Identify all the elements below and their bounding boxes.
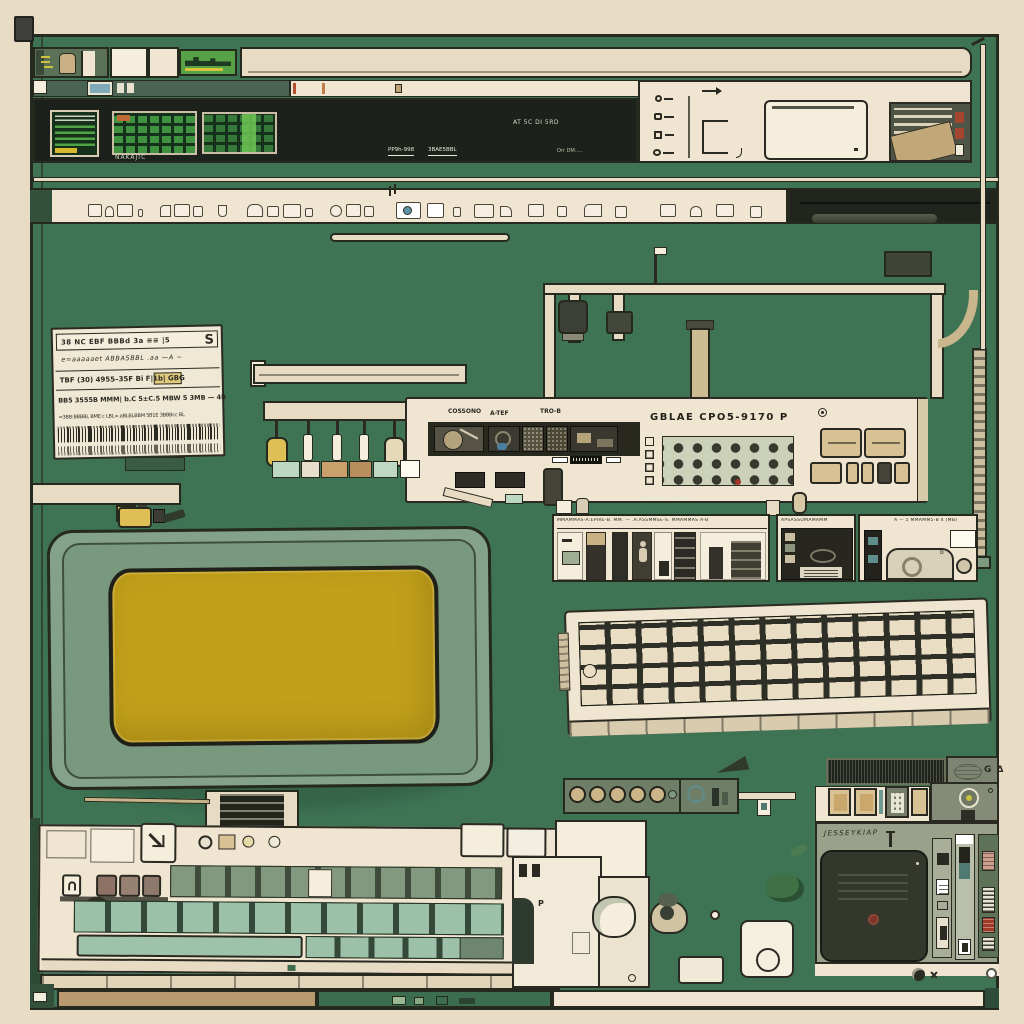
device-doodle [305,208,313,217]
terrarium-device [33,47,109,78]
radio-bottom-strip [815,962,999,976]
module-a-left-wall [557,532,583,580]
appliance-door-ring [902,557,922,577]
crt-strip-caption: NAKAJIC [115,155,146,161]
console-arch [512,898,534,964]
hanger-stem [275,420,278,438]
rack-label-1: COSSONO [448,409,481,415]
rack-attach-box [400,460,420,478]
console-square-outline [572,932,590,954]
big-key-line [872,442,900,444]
kbd-arrow-key [140,823,176,863]
rack-mint-box [505,494,523,504]
device-doodle [174,204,190,217]
pipe-left-vertical [543,293,556,399]
plant-blob [766,874,804,902]
module-b-platter [810,549,836,563]
disk-platter [443,430,463,450]
hanger-pin [332,434,342,461]
divider-line [688,96,690,158]
spec-card: 38 NC EBF BBBd 3a ≡≡ |5 S e=aaaaaet ABBA… [51,324,226,460]
crt-screen-3 [202,112,277,154]
device-doodle [117,204,133,217]
camera-pod [558,300,588,334]
keypad-grid [891,793,904,813]
crt-monitor-shell [47,526,494,791]
rack-label-3: TRO-B [540,409,561,415]
device-doodle [330,205,342,217]
wall-mark [562,539,572,542]
console-p-mark: P [538,900,544,908]
monitor-top-knob [118,507,152,528]
console-dot [628,974,636,982]
chip-strip [33,80,290,97]
radio-col-2 [955,834,975,960]
pipe-b-pod [606,311,633,334]
camera-pod-base [562,333,584,341]
module-b: APSASSOMAMAMM [776,514,856,582]
col1-dark-square [937,853,949,865]
radio-white-ring [986,968,997,979]
kbd-olive-keyrow [170,865,502,899]
device-doodle [528,204,544,217]
mid-keyboard [564,597,996,750]
radio-bottom-knob [912,968,925,981]
key-icon-2 [654,113,662,120]
kbd-bottom-bezel [42,958,554,974]
bottom-strip-dark-block [985,988,999,1008]
big-pipe [690,328,710,399]
big-key-2 [864,428,906,458]
tray-rod [812,214,937,223]
module-a-door-1 [586,532,606,580]
device-doodle [474,204,494,218]
dial-tiny-circle [988,788,993,793]
indicator-column [645,437,654,446]
terrarium-dark-block [36,50,44,75]
reel-window [488,426,520,452]
kbd-knob-ball-yellow [242,836,254,848]
illustration-canvas: NAKAJIC PP9h-998 3BAE5BBL AT 5C DI 5RD O… [0,0,1024,1024]
module-a-room-right [700,532,766,580]
radio-teal-sliver [879,790,883,814]
kbd-space-bar [77,934,303,958]
kbd-cream-key-arch [62,874,81,896]
kbd-knob-cube [218,834,235,849]
card-corner-mark: S [204,333,214,346]
terrarium-door [81,51,95,76]
module-c-mark: b [940,550,944,556]
slider-key [846,462,859,484]
corner-knob [14,16,34,42]
cassette-red-label [955,112,964,123]
card-barcode-1 [58,423,220,442]
radio-dial [959,788,979,808]
col1-book-icon [936,879,949,895]
tile-mint-1 [272,461,300,478]
device-doodle [557,206,567,217]
radio-col-1 [932,838,952,958]
speaker-white-dot [916,862,919,865]
kbd-brown-key [142,875,161,897]
whiteboard [764,100,868,160]
device-doodle [88,204,102,217]
top-long-bar-line [248,71,962,73]
tiny-figure-body [639,548,647,562]
slider-key [861,462,874,484]
hanger-bar-bottom [263,401,417,421]
cityscape-screen [179,49,237,76]
radio-t-mark [889,831,892,847]
crt1-caption-rows [55,115,95,121]
bottom-left-dark-square [30,984,54,1008]
dark-transformer-box [884,251,932,277]
big-key-line [828,442,856,444]
device-doodle [218,205,227,217]
module-c-header: A — 5 MMAMM5-B 4 (MB) [894,518,976,526]
shelf-knob [649,786,666,803]
dial-dark-square [961,810,975,820]
col3-barcode-chip-2 [982,937,995,951]
tray-shadow-line [800,202,990,204]
radio-stamp [954,764,982,780]
shelf-knob [569,786,586,803]
strip-glyph-2 [414,997,424,1005]
arch-glyph [68,881,76,890]
module-top-cylinder [576,498,589,514]
kbd-left-panel-1 [46,830,86,858]
head-block-2 [597,439,613,447]
device-doodle [193,206,203,217]
key-icon-1-tail [664,98,673,100]
rack-tape-label [570,456,602,464]
dial-center-dot [966,795,972,801]
crt-strip-tag-1: PP9h-998 [388,148,414,156]
mug [740,920,794,978]
kbd-brown-key [119,875,140,897]
key-icon-3 [654,131,662,139]
module-a-header: MMAMMAS-A:EPIRE-B. MM. — .A:ASSMMSE-S. M… [557,518,767,529]
terrarium-bottle [59,53,76,74]
left-connector-bar [31,483,181,505]
crt1-yellow-bar [55,148,77,153]
card-barcode-2 [58,443,220,455]
disk-window [434,426,484,452]
teal-ring-icon [687,785,705,803]
device-doodle [346,204,361,217]
card-row-text: 38 NC EBF BBBd 3a ≡≡ |5 [61,337,170,346]
kbd-white-box-2 [506,827,546,857]
head-window [570,426,618,452]
blank-panel-b [148,47,179,78]
radio-dial-panel [930,782,999,822]
kbd-left-panel-2 [90,829,134,863]
radio-scribble: JESSEYKIAP [824,830,879,838]
radio-button-2 [854,788,877,816]
thin-rod [330,233,510,242]
key-icon-4-tail [663,152,674,154]
crt1-text-rows [55,124,95,146]
dark-tray-panel [788,188,999,224]
at-mark-icon [818,408,827,417]
wall-sage-rect [562,551,580,565]
col2-white-top [956,835,973,844]
doodle-teal-dot [403,206,412,215]
antenna-stem [654,252,657,285]
radio-button-3 [911,788,928,816]
col2-slot-center [962,943,968,952]
teal-chip [88,82,112,95]
shelf-figure-1 [712,788,719,806]
shelf-mini-knob [668,790,677,799]
col2-bottom-slot [958,939,971,955]
shelf-figure-3 [757,799,771,816]
mini-box [33,80,47,94]
col3-red-chip [982,917,995,933]
console-box-main: P [512,856,602,988]
mound-cap [658,893,678,907]
mini-screen-teal [868,537,878,545]
speaker-window [820,850,928,962]
mid-keyboard-keyfield [578,610,976,706]
device-doodle [615,206,627,218]
strip-glyph-3 [436,996,448,1005]
key-icon-3-tail [665,134,674,136]
card-row-3: TBF (30) 4955–35F Bi F|1b| GBG [56,367,220,390]
module-c-white-bar [950,530,976,548]
shelf-knob [609,786,626,803]
whiteboard-dot [854,148,858,151]
device-doodle [247,204,263,217]
rack-right-wall [917,399,928,501]
tan-tick [395,84,402,93]
col3-pink-chip [982,851,995,871]
device-doodle [160,205,171,217]
right-rod [980,44,986,350]
col2-teal-window [959,863,970,879]
bottom-strip-cream [552,990,985,1008]
rack-slot-1 [455,472,485,488]
small-tray [678,956,724,984]
module-c-knob [956,558,972,574]
crt-monitor-screen [108,565,440,746]
cityscape-ticker [185,68,223,71]
rack-label-2: A-TEF [490,411,509,417]
big-key-1 [820,428,862,458]
wall-window [659,561,669,576]
bezel-green-tick [288,965,296,971]
device-doodle-screen [396,202,421,219]
at-mark-dot [821,411,824,414]
col1-slot-center [940,926,947,940]
kbd-mint-keyrow [74,900,504,935]
rack-watermark: SEGRETE-ARCA [640,497,690,502]
shelf-figure-2 [722,792,728,805]
blank-panel-a [110,47,148,78]
room-dark-door [709,547,723,579]
band-divider-ticks [389,186,391,196]
glove-blob [592,896,636,938]
antenna-flag [654,247,667,255]
figure-teal-dot [761,803,767,810]
device-doodle [750,206,762,218]
hose-arc-curve [938,290,978,348]
module-b-plate [800,567,842,578]
crt2-spark [117,115,130,121]
hanger-pin [359,434,369,461]
arrow-icon [702,90,717,92]
col1-slot [936,917,949,949]
module-b-tile [785,533,795,541]
glyph-band-end-block [30,190,52,222]
key-icon-1 [655,95,662,102]
key-icon-4 [653,149,661,156]
device-doodle [716,204,734,217]
key-icon-2-tail [664,116,674,118]
t-mark-bar [886,831,895,833]
speaker-faint-rows [838,870,908,900]
rack-slot-2 [495,472,525,488]
kbd-dark-key-patch [460,937,504,959]
module-b-interior [781,528,853,580]
module-c: A — 5 MMAMM5-B 4 (MB) b [858,514,978,582]
tile-mint-2 [373,461,398,478]
device-doodle [267,206,279,217]
whiteboard-top-line [772,106,854,109]
hanger-bar-line [259,374,459,376]
dark-square-white-box [33,992,47,1002]
module-a-door-2 [612,532,628,580]
rack-label-strip-white-1 [552,457,568,463]
bottom-strip-green [317,990,552,1008]
crt-screen-2 [112,111,197,155]
hanger-pin [303,434,313,461]
cassette-device [889,102,972,162]
device-doodle [500,206,512,217]
module-c-dark-strip [864,530,882,580]
chip-label-pair [117,83,124,93]
cassette-white-label [955,144,964,156]
round-button-grid [662,436,794,486]
col3-barcode-chip [982,887,995,913]
bottom-strip-tan [57,990,317,1008]
console-slot [519,864,527,877]
rack-title: GBLAE CPO5-9170 P [650,413,789,423]
card-row-4: BB5 3555B MMM| b.C 5±C.5 MBW 5 3MB — 4B [58,394,226,404]
module-a-door-3 [632,532,652,580]
rack-label-strip-white-2 [606,457,621,463]
bottom-keyboard [37,824,558,976]
hanger-bar-top [253,364,467,384]
radio-badge: G Δ [984,766,1005,775]
device-doodle [427,203,444,218]
grid-red-dot [735,479,741,485]
crt-screen-1 [50,110,99,157]
shelf-knob [589,786,606,803]
arrow-icon-head [716,87,722,95]
radio-button-1 [828,788,851,816]
device-doodle [364,206,374,217]
device-doodle [105,206,114,217]
module-b-header: APSASSOMAMAMM [781,518,853,526]
module-a-wall-2 [654,532,672,580]
hook-mark [736,148,742,158]
radio-keypad-module [885,786,909,818]
kbd-white-box-1 [460,823,504,857]
icon-panel [638,80,972,163]
device-doodle [283,204,301,218]
crt-strip-code-1: AT 5C DI 5RD [513,120,559,126]
speaker-red-dot [868,914,879,925]
room-shelf [731,541,761,579]
crt-strip-tag-2: 3BAE5BBL [428,148,457,156]
device-doodle [453,207,461,217]
horizontal-pipe [543,283,946,295]
strip-glyph-1 [392,996,406,1005]
strip-glyph-4 [459,998,475,1004]
device-doodle [138,209,143,217]
slider-key-dark [877,462,892,484]
olive-row-white-key [308,869,332,897]
device-doodle [584,204,602,217]
top-long-bar [240,47,972,78]
crt-strip-code-2: Orr DM:.... [557,149,583,154]
tile-tan-2 [349,461,372,478]
shelf-knob [629,786,646,803]
dot-window-1 [522,426,544,452]
mid-keyboard-connector [558,633,571,691]
slider-key-big [810,462,842,484]
bracket-icon [702,120,728,154]
rack-under-capsule [792,492,807,514]
module-top-box [556,500,572,514]
shelf-divider [679,778,681,814]
hanger-stem [393,420,396,438]
head-block-1 [577,433,591,443]
card-tab [125,457,185,471]
rack-window-field [428,422,640,456]
tile-tan-1 [321,461,348,478]
button-inner [860,794,873,811]
card-row-5: =3BB:BBBBL BME c LBL=.aBLBLBBM 5B1E 3BBB… [58,413,184,421]
kbd-brown-key [96,875,117,897]
radio-grille [826,758,946,785]
card-row-1: 38 NC EBF BBBd 3a ≡≡ |5 S [56,330,218,350]
kbd-knob-ball-white [268,836,280,848]
dot-window-2 [546,426,568,452]
button-inner [834,794,847,811]
red-tick-2 [322,83,325,94]
slider-key [894,462,910,484]
desk-knob-white [710,910,720,920]
tiny-figure-head [640,541,646,547]
cityscape-silhouette [185,57,231,66]
module-a: MMAMMAS-A:EPIRE-B. MM. — .A:ASSMMSE-S. M… [552,514,770,582]
radio-x-mark [930,971,938,979]
mug-circle [756,948,780,972]
terrarium-hatch-mark [41,56,50,58]
kbd-knob-circle [198,835,212,849]
radio-col-3 [978,834,999,958]
card-row-2: e=aaaaaet ABBA5BBL .aa —A ~ [61,354,182,363]
thin-shelf-line [33,177,999,182]
reel-blue-bit [497,443,507,450]
device-doodle [690,206,702,217]
desk-knob-dark [660,906,674,920]
col1-window [937,901,948,910]
hose-arc [938,290,984,354]
red-tick-1 [293,83,296,94]
